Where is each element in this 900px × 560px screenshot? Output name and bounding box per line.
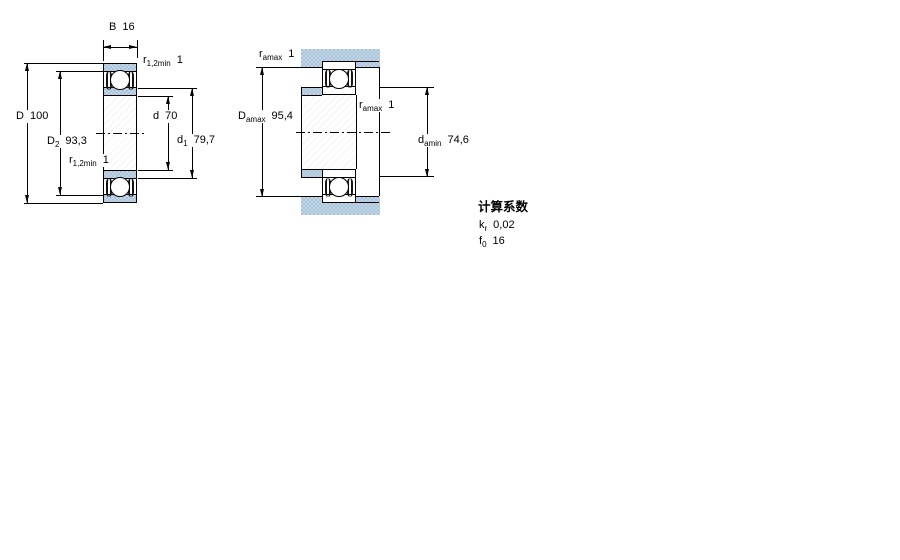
arrowhead [25, 195, 29, 203]
label-r12min-top: r1,2min1 [142, 54, 184, 67]
dimension-line-D2 [60, 71, 61, 195]
shoulder-edge-line [301, 169, 322, 170]
extension-line [24, 203, 103, 204]
calculation-factors-heading: 计算系数 [478, 196, 528, 215]
arrowhead [58, 71, 62, 79]
arrowhead [260, 67, 264, 75]
label-width-B: B16 [108, 21, 136, 34]
dim-value: 74,6 [447, 134, 468, 146]
dim-value: 100 [30, 110, 48, 122]
housing-bore-line [356, 61, 379, 62]
dimension-line-d [168, 96, 169, 170]
factor-symbol: k [479, 219, 485, 231]
extension-line [24, 63, 103, 64]
mounted-bearing-section-bottom [322, 169, 356, 203]
bearing-ring-section-bottom [103, 170, 137, 203]
extension-line [137, 40, 138, 58]
housing-face-line [356, 67, 379, 68]
shaft-shoulder-top [301, 87, 322, 95]
arrowhead [425, 87, 429, 95]
label-shaft-abutment-damin: damin74,6 [417, 134, 470, 147]
dim-value: 1 [103, 154, 109, 166]
dim-subscript: amax [363, 104, 383, 113]
label-outside-diameter-D: D100 [15, 110, 49, 123]
dim-value: 1 [388, 99, 394, 111]
shoulder-edge-line [301, 177, 322, 178]
arrowhead [425, 169, 429, 177]
dim-symbol: d [153, 110, 159, 122]
dimension-line-d1 [192, 88, 193, 178]
label-bore-diameter-d: d70 [152, 110, 178, 123]
label-recess-diameter-D2: D293,3 [46, 135, 88, 148]
dim-subscript: amax [263, 53, 283, 62]
arrowhead [190, 88, 194, 96]
extension-line [138, 170, 173, 171]
arrowhead [58, 187, 62, 195]
arrowhead [103, 45, 111, 49]
factor-value: 16 [493, 235, 505, 247]
dim-value: 70 [165, 110, 177, 122]
bearing-ring-section-top [103, 63, 137, 96]
dim-symbol: B [109, 21, 116, 33]
dim-value: 79,7 [194, 134, 215, 146]
dim-subscript: amin [424, 139, 441, 148]
dim-value: 93,3 [65, 135, 86, 147]
arrowhead [166, 162, 170, 170]
extension-line [138, 88, 197, 89]
dimension-line-damin [427, 87, 428, 177]
label-r12min-bottom: r1,2min1 [68, 154, 110, 167]
ball [110, 70, 130, 90]
dim-subscript: 2 [55, 140, 59, 149]
shoulder-edge-line [301, 87, 322, 88]
dim-subscript: amax [246, 115, 266, 124]
dimension-line-D [27, 63, 28, 203]
arrowhead [260, 189, 264, 197]
dim-value: 95,4 [272, 110, 293, 122]
extension-line [56, 195, 103, 196]
dim-symbol: D [238, 110, 246, 122]
ball [329, 69, 349, 89]
ball [110, 177, 130, 197]
shaft-shoulder-bottom [301, 169, 322, 177]
center-line [296, 132, 390, 133]
extension-line [103, 40, 104, 61]
label-ramax-top: ramax1 [258, 48, 295, 61]
dim-value: 1 [177, 54, 183, 66]
factor-value: 0,02 [493, 219, 514, 231]
shoulder-edge-line [301, 95, 322, 96]
arrowhead [190, 170, 194, 178]
ball [329, 177, 349, 197]
dim-value: 1 [288, 48, 294, 60]
arrowhead [25, 63, 29, 71]
center-line [96, 133, 144, 134]
factor-f0: f016 [478, 235, 506, 248]
arrowhead [166, 96, 170, 104]
factor-subscript: 0 [482, 240, 486, 249]
dim-value: 16 [122, 21, 134, 33]
mounted-bearing-section-top [322, 61, 356, 95]
dimension-line-Damax [262, 67, 263, 197]
extension-line [56, 71, 103, 72]
dim-subscript: 1,2min [147, 59, 171, 68]
dim-subscript: 1 [183, 139, 187, 148]
dim-subscript: 1,2min [73, 159, 97, 168]
factor-kr: kr0,02 [478, 219, 516, 232]
housing-face-line [356, 196, 379, 197]
factor-subscript: r [485, 224, 488, 233]
arrowhead [129, 45, 137, 49]
label-shoulder-diameter-d1: d179,7 [176, 134, 216, 147]
housing-bore-line [356, 202, 379, 203]
label-housing-abutment-Damax: Damax95,4 [237, 110, 294, 123]
dim-symbol: D [47, 135, 55, 147]
housing-face-line [301, 67, 322, 68]
extension-line [138, 178, 197, 179]
dim-symbol: D [16, 110, 24, 122]
label-ramax-middle: ramax1 [358, 99, 395, 112]
housing-face-line [301, 196, 322, 197]
bearing-dimension-drawing: B16 r1,2min1 [0, 0, 900, 560]
